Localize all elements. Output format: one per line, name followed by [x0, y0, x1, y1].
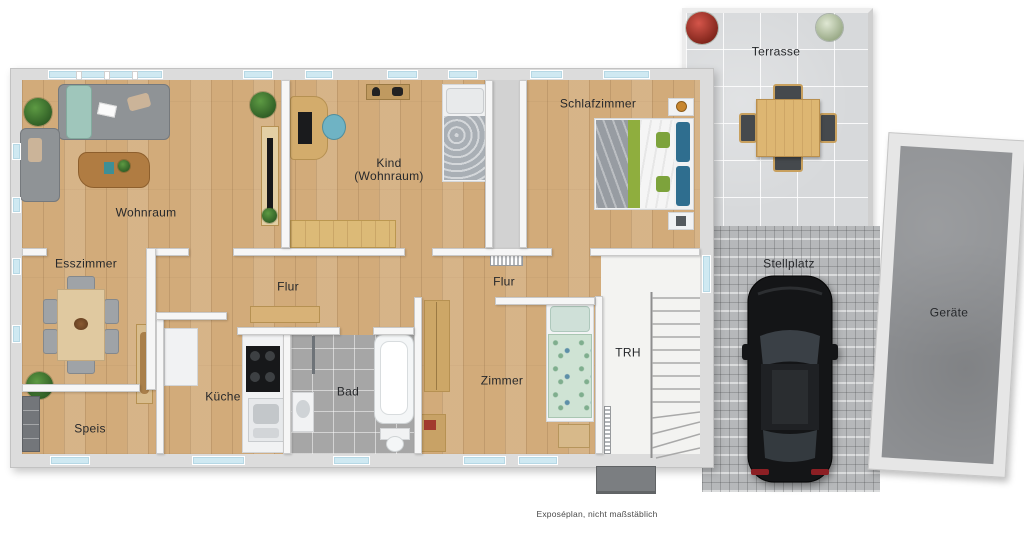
- bathtub-basin: [380, 341, 408, 415]
- wall: [595, 296, 603, 454]
- wardrobe-door-line: [436, 302, 437, 390]
- wall: [281, 80, 290, 248]
- plant: [250, 92, 276, 118]
- dining-chair: [43, 299, 58, 324]
- plan-footnote: Exposéplan, nicht maßstäblich: [536, 509, 657, 519]
- tv: [267, 138, 273, 214]
- plant: [24, 98, 52, 126]
- window: [333, 456, 370, 465]
- wall: [373, 327, 414, 335]
- pet-figure-icon: [392, 87, 403, 96]
- wall: [156, 312, 227, 320]
- toilet-bowl: [386, 436, 404, 452]
- laptop: [298, 112, 312, 144]
- window: [48, 70, 163, 79]
- bed-blanket-green: [628, 120, 640, 208]
- car: [742, 272, 838, 486]
- burner: [250, 372, 260, 382]
- room-label-schlafzimmer: Schlafzimmer: [560, 98, 636, 111]
- sofa-pillow: [28, 138, 42, 162]
- wall: [495, 297, 595, 305]
- wardrobe: [424, 300, 450, 392]
- wall: [485, 80, 493, 248]
- bed-duvet: [548, 334, 592, 418]
- room-label-kind: Kind (Wohnraum): [354, 157, 423, 183]
- window: [305, 70, 333, 79]
- window: [603, 70, 650, 79]
- sofa-blanket: [66, 85, 92, 139]
- storage-shelf: [22, 396, 40, 452]
- sink-basin: [253, 428, 279, 438]
- room-label-flur-west: Flur: [277, 281, 299, 294]
- bed-pillow-blue: [676, 166, 690, 206]
- room-label-zimmer: Zimmer: [481, 375, 523, 388]
- wall: [590, 248, 700, 256]
- floor-plan: Wohnraum Esszimmer Speis Küche Flur Bad …: [0, 0, 1024, 556]
- window: [518, 456, 558, 465]
- sink-basin: [253, 404, 279, 424]
- wall: [233, 248, 405, 256]
- room-label-trh: TRH: [615, 347, 641, 360]
- room-label-kind-line1: Kind: [376, 156, 401, 170]
- room-label-geraete: Geräte: [930, 307, 969, 320]
- alarm-clock-icon: [676, 101, 687, 112]
- window: [192, 456, 245, 465]
- window: [12, 197, 21, 213]
- bench: [290, 220, 396, 248]
- room-label-stellplatz: Stellplatz: [763, 258, 815, 271]
- room-label-wohnraum: Wohnraum: [116, 207, 177, 220]
- dining-chair: [67, 359, 95, 374]
- flower-bush-red-icon: [686, 12, 718, 44]
- wall: [146, 248, 156, 390]
- burner: [265, 351, 275, 361]
- window: [387, 70, 418, 79]
- window: [50, 456, 90, 465]
- bed-pillow: [550, 306, 590, 332]
- room-label-flur-ost: Flur: [493, 276, 515, 289]
- desk-items: [424, 420, 436, 430]
- plant: [118, 160, 130, 172]
- washbasin-bowl: [296, 400, 310, 418]
- room-label-kueche: Küche: [205, 391, 241, 404]
- table-decoration: [74, 318, 88, 330]
- plant: [262, 208, 277, 223]
- bed-pillow-green: [656, 132, 670, 148]
- flower-bush-white-icon: [816, 14, 843, 41]
- terrace-table: [756, 99, 820, 157]
- window: [448, 70, 478, 79]
- staircase: [650, 290, 700, 462]
- dining-chair: [104, 299, 119, 324]
- desk-chair: [322, 114, 346, 140]
- window: [702, 255, 711, 293]
- terrace-chair: [819, 113, 837, 143]
- bed-pillow-blue: [676, 122, 690, 162]
- nightstand-decor: [676, 216, 686, 226]
- pet-figure-icon: [372, 87, 380, 96]
- wall: [22, 384, 140, 392]
- wall: [414, 297, 422, 454]
- bed-pillow: [446, 88, 484, 114]
- room-label-esszimmer: Esszimmer: [55, 258, 117, 271]
- window: [12, 143, 21, 160]
- room-label-speis: Speis: [74, 423, 106, 436]
- room-label-terrasse: Terrasse: [752, 46, 800, 59]
- window: [530, 70, 563, 79]
- burner: [265, 372, 275, 382]
- wall: [519, 80, 527, 248]
- wall: [22, 248, 47, 256]
- entrance-step: [596, 466, 656, 494]
- side-table: [558, 424, 590, 448]
- wall: [432, 248, 552, 256]
- burner: [250, 351, 260, 361]
- bed-duvet-gray: [444, 116, 486, 180]
- shaft-floor: [493, 80, 519, 248]
- coffee-table: [78, 152, 150, 188]
- window: [243, 70, 273, 79]
- window: [463, 456, 506, 465]
- sideboard: [250, 306, 320, 323]
- wall: [283, 327, 291, 454]
- shower-partition: [312, 336, 315, 374]
- bed-pillow-green: [656, 176, 670, 192]
- dining-chair: [104, 329, 119, 354]
- room-label-kind-line2: (Wohnraum): [354, 169, 423, 183]
- window: [12, 325, 21, 343]
- room-label-bad: Bad: [337, 386, 359, 399]
- wall: [156, 312, 164, 454]
- window: [12, 258, 21, 275]
- wall: [237, 327, 340, 335]
- dining-chair: [43, 329, 58, 354]
- table-book: [104, 162, 114, 174]
- terrace-chair: [739, 113, 757, 143]
- refrigerator: [164, 328, 198, 386]
- radiator: [604, 406, 611, 454]
